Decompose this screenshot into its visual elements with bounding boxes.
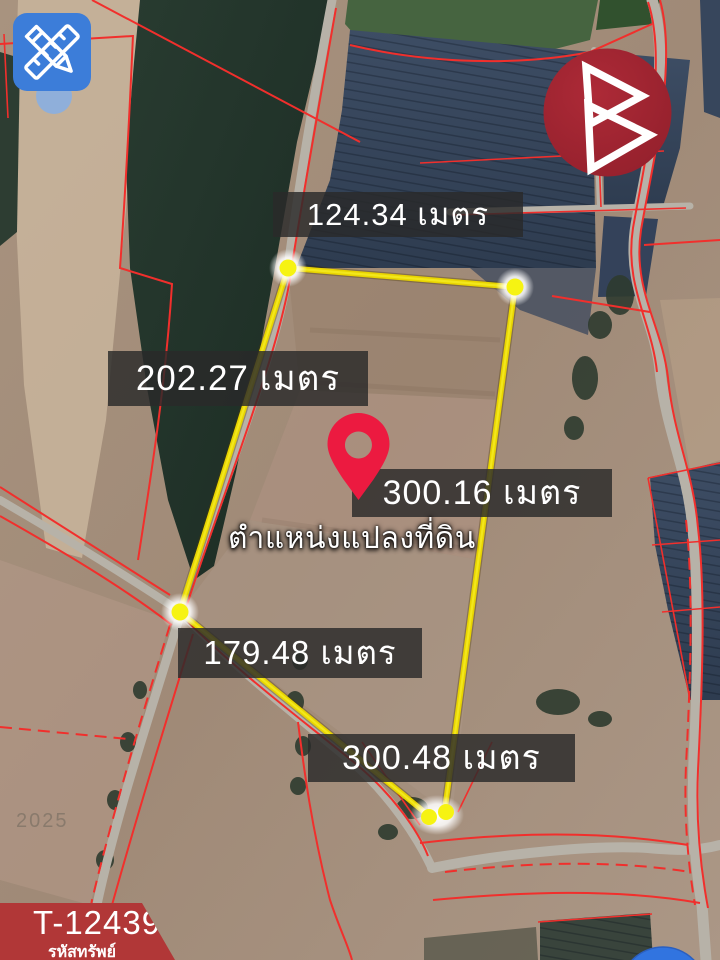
- yellow-vertex-dot: [507, 279, 524, 296]
- property-map-screen: 2025 124.34 เมตร 202.27 เมตร 300.16 เมตร…: [0, 0, 720, 960]
- yellow-vertex-dot: [438, 804, 454, 820]
- measurement-label-left: 202.27 เมตร: [108, 351, 368, 406]
- yellow-vertex-dot: [280, 260, 297, 277]
- measurement-label-right: 300.16 เมตร: [352, 469, 612, 517]
- property-code-label: รหัสทรัพย์: [48, 940, 116, 960]
- plot-position-caption: ตำแหน่งแปลงที่ดิน: [228, 515, 476, 562]
- yellow-vertex-dot: [172, 604, 189, 621]
- yellow-vertex-dot: [421, 809, 437, 825]
- measurement-label-bottom: 300.48 เมตร: [308, 734, 575, 782]
- map-watermark: 2025: [16, 810, 69, 833]
- ruler-pencil-icon: [13, 13, 91, 91]
- vertex-glow: [410, 795, 464, 835]
- measure-tool-button[interactable]: [13, 13, 91, 91]
- measurement-label-lower-left: 179.48 เมตร: [178, 628, 422, 678]
- brand-logo: [542, 47, 673, 178]
- measurement-label-top: 124.34 เมตร: [273, 192, 523, 237]
